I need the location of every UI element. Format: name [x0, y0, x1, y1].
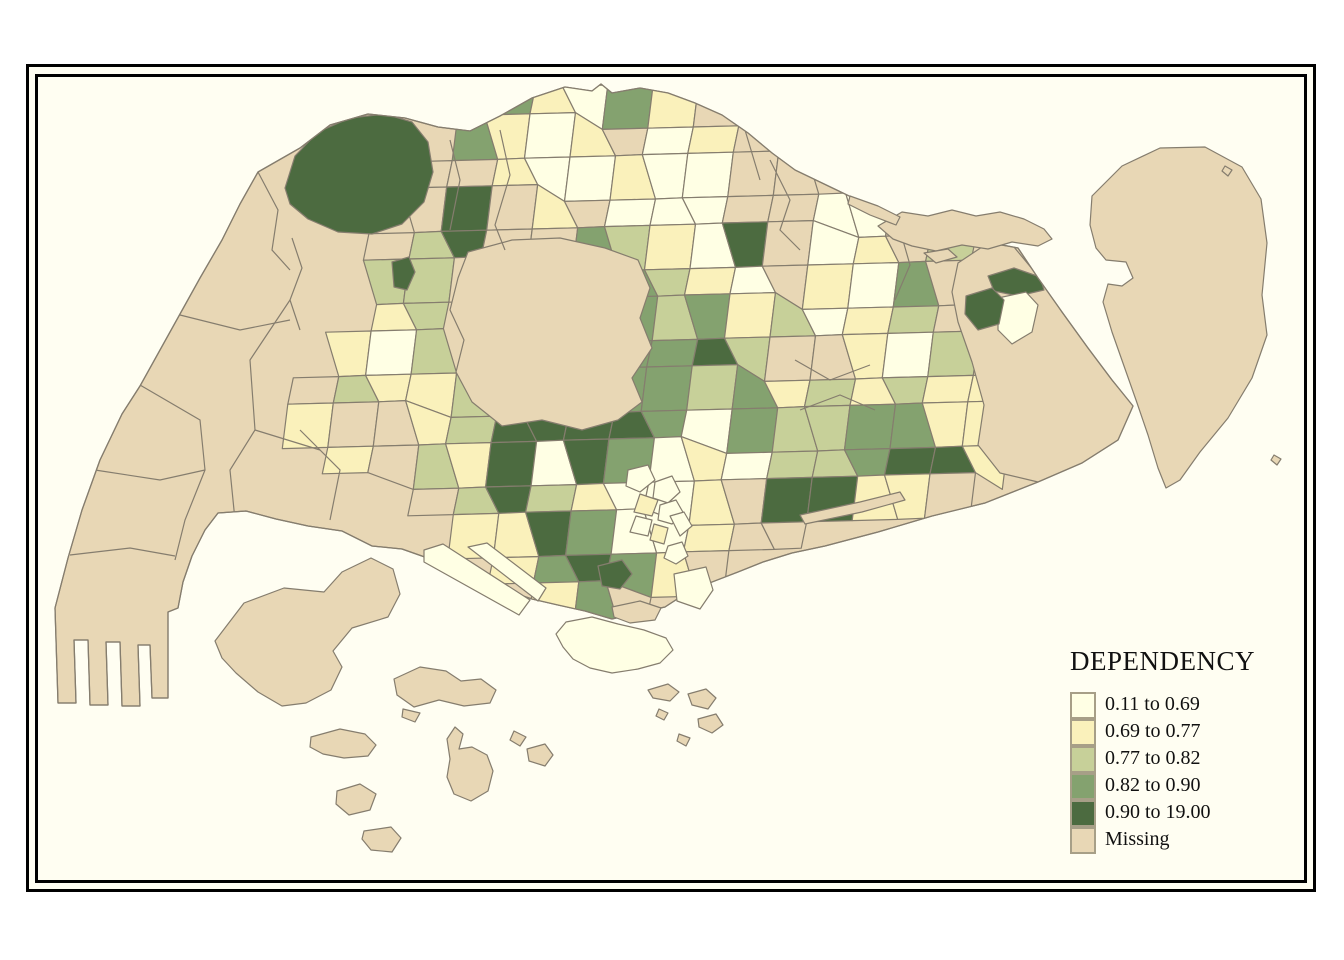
legend-item: 0.82 to 0.90 — [1070, 772, 1255, 799]
subzone — [683, 524, 734, 552]
subzone — [721, 452, 772, 480]
subzone — [845, 404, 896, 450]
subzone — [688, 126, 739, 154]
subzone — [762, 221, 813, 267]
subzone — [842, 307, 893, 335]
subzone — [648, 83, 699, 129]
subzone — [647, 339, 698, 367]
island-pulau-senang — [362, 827, 401, 852]
subzone — [645, 224, 696, 270]
legend-swatch-icon — [1070, 827, 1096, 854]
subzone — [441, 186, 492, 232]
legend-item-label: 0.69 to 0.77 — [1105, 718, 1201, 745]
subzone — [526, 485, 577, 513]
subzone — [288, 377, 339, 405]
subzone — [487, 185, 538, 231]
subzone — [566, 510, 617, 556]
legend-swatch-icon — [1070, 800, 1096, 827]
subzone — [605, 199, 656, 227]
subzone — [805, 379, 856, 407]
subzone — [727, 408, 778, 454]
legend-item: Missing — [1070, 826, 1255, 853]
legend: DEPENDENCY 0.11 to 0.69 0.69 to 0.77 0.7… — [1070, 646, 1255, 853]
subzone — [565, 156, 616, 202]
island-st-johns-island — [648, 684, 679, 701]
island-pulau-bukom — [394, 667, 496, 707]
island-jurong-island — [215, 558, 400, 706]
legend-item: 0.11 to 0.69 — [1070, 691, 1255, 718]
island-bukom-islet — [402, 709, 420, 722]
subzone — [328, 402, 379, 448]
legend-title: DEPENDENCY — [1070, 646, 1255, 677]
subzone — [682, 152, 733, 198]
subzone — [642, 127, 693, 155]
subzone — [725, 293, 776, 339]
subzone — [768, 194, 819, 222]
pier-marina-south — [674, 567, 713, 609]
region-changi — [952, 243, 1134, 482]
subzone — [486, 441, 537, 487]
legend-item-label: 0.90 to 19.00 — [1105, 799, 1211, 826]
subzone — [848, 263, 899, 309]
legend-swatch-icon — [1070, 692, 1096, 719]
island-changi-islet — [1271, 455, 1281, 465]
legend-item-label: 0.82 to 0.90 — [1105, 772, 1201, 799]
legend-item-label: Missing — [1105, 826, 1169, 853]
island-pulau-jong — [510, 731, 526, 746]
subzone — [525, 113, 576, 159]
subzone — [447, 159, 498, 187]
island-sentosa — [556, 617, 673, 673]
subzone — [922, 375, 973, 403]
subzone — [408, 488, 459, 516]
subzone — [888, 306, 939, 334]
legend-item: 0.90 to 19.00 — [1070, 799, 1255, 826]
subzone — [802, 264, 853, 310]
legend-item-label: 0.11 to 0.69 — [1105, 691, 1200, 718]
subzone — [693, 81, 739, 127]
legend-swatch-icon — [1070, 746, 1096, 773]
island-islet-south-2 — [677, 734, 690, 746]
island-pulau-semakau — [447, 727, 493, 801]
page: { "frame": { "page_bg": "#ffffff", "bord… — [0, 0, 1344, 960]
subzone — [733, 125, 779, 153]
island-lazarus-island — [688, 689, 716, 709]
island-islet-south-1 — [656, 709, 668, 720]
legend-swatch-icon — [1070, 773, 1096, 800]
island-kusu-island — [698, 714, 723, 733]
legend-swatch-icon — [1070, 719, 1096, 746]
subzone — [765, 336, 816, 382]
subzone — [767, 451, 818, 479]
subzone — [687, 365, 738, 411]
island-pulau-pawai — [336, 784, 376, 815]
subzone — [722, 195, 773, 223]
subzone — [773, 150, 819, 196]
legend-item: 0.77 to 0.82 — [1070, 745, 1255, 772]
subzone — [641, 366, 692, 412]
subzone — [885, 447, 936, 475]
subzone — [363, 233, 414, 261]
legend-item: 0.69 to 0.77 — [1070, 718, 1255, 745]
legend-item-label: 0.77 to 0.82 — [1105, 745, 1201, 772]
subzone — [282, 403, 333, 449]
island-pulau-sebarok — [527, 744, 553, 766]
region-western-catchment — [285, 114, 433, 234]
island-pulau-sudong — [310, 729, 376, 758]
subzone — [446, 416, 497, 444]
subzone — [366, 330, 417, 376]
region-central-catchment — [450, 238, 652, 430]
region-cbd-sub-6 — [650, 524, 668, 544]
subzone — [882, 332, 933, 378]
subzone — [685, 267, 736, 295]
